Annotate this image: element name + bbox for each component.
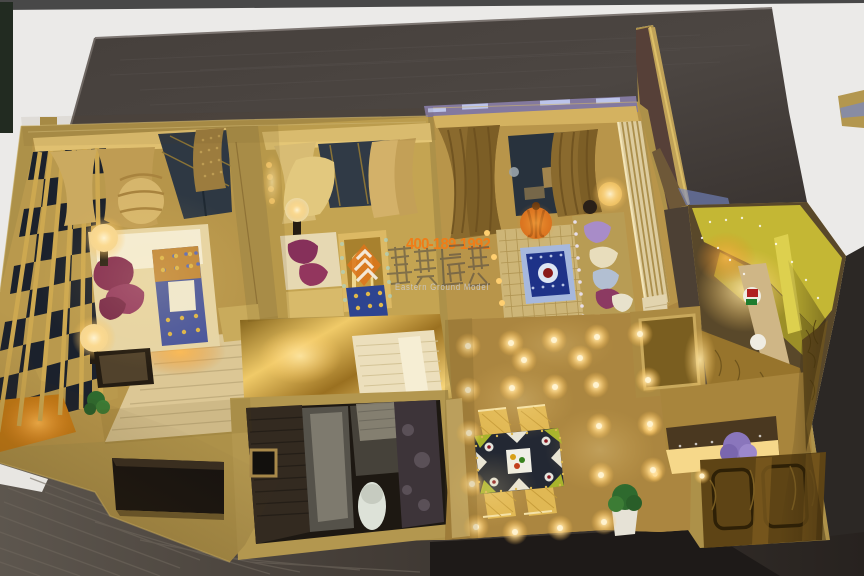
svg-text:Eastern Ground Model: Eastern Ground Model	[395, 282, 489, 292]
